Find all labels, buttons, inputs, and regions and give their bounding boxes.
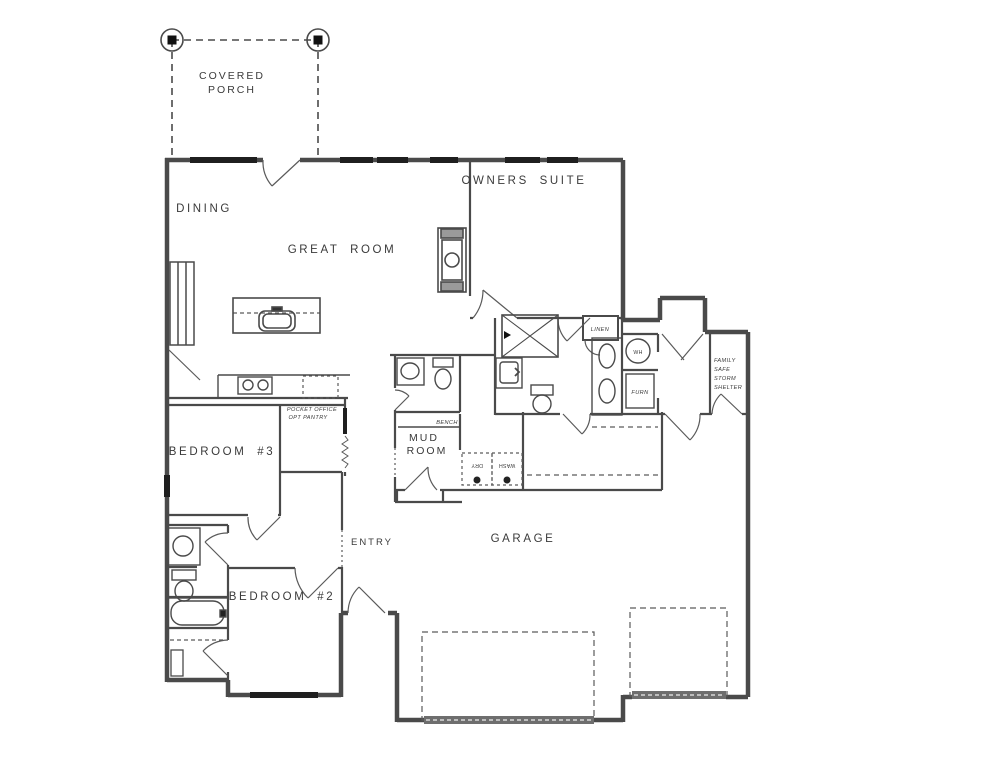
sink-icon: [599, 344, 615, 368]
pocket-door-cavity: [342, 436, 348, 468]
bench-label: BENCH: [436, 420, 458, 426]
storm-shelter-label: STORM: [714, 376, 736, 382]
door-swing-icon: [712, 394, 742, 414]
entry-label: ENTRY: [351, 537, 393, 548]
door-swing-icon: [203, 640, 228, 676]
window-icon: [430, 157, 458, 163]
washer-hookup-icon: [504, 477, 511, 484]
powder-bath-fixtures: [397, 358, 453, 389]
dining-label: DINING: [176, 203, 232, 215]
showerhead-icon: [504, 331, 511, 339]
hall-bath-fixtures: [167, 528, 228, 628]
double-vanity-icon: [592, 338, 622, 415]
door-swing-icon: [205, 533, 228, 565]
porch-outline: [172, 40, 318, 158]
tub-drain-icon: [220, 610, 226, 617]
door-swing-icon: [563, 414, 590, 434]
floor-plan-drawing: COVERED PORCH DINING GREAT ROOM OWNERS S…: [0, 0, 1002, 768]
furnace-label: FURN: [631, 390, 649, 396]
great-room-label: GREAT ROOM: [288, 244, 397, 256]
toilet-icon: [172, 570, 196, 580]
door-swing-icon: [348, 587, 385, 613]
pocket-office-label: OPT PANTRY: [288, 415, 328, 421]
door-swing-icon: [665, 414, 700, 440]
window-icon: [377, 157, 408, 163]
door-swing-icon: [248, 517, 280, 540]
pocket-office-label: POCKET OFFICE: [287, 407, 337, 413]
closet-rod-icon: [527, 427, 658, 475]
covered-porch-label: PORCH: [208, 84, 256, 96]
window-icon: [190, 157, 257, 163]
refrigerator-icon: [303, 376, 338, 398]
toilet-icon: [433, 358, 453, 367]
linen-label: LINEN: [591, 327, 610, 333]
window-icon: [164, 475, 170, 497]
door-swing-icon: [558, 318, 590, 341]
vanity-sink-icon: [496, 358, 522, 388]
washer-label: WASH: [499, 462, 516, 468]
storm-shelter-label: SHELTER: [714, 385, 742, 391]
sink-icon: [173, 536, 193, 556]
garage-door-track-icon: [630, 608, 727, 696]
mud-room-label: ROOM: [407, 445, 448, 457]
kitchen-counter: [218, 375, 350, 398]
door-swing-icon: [473, 290, 517, 318]
storm-shelter-label: SAFE: [714, 367, 730, 373]
window-icon: [250, 692, 318, 698]
corner-pantry-door: [169, 350, 200, 380]
toilet-icon: [531, 385, 553, 413]
dryer-hookup-icon: [474, 477, 481, 484]
fireplace-icon: [438, 228, 466, 292]
door-swing-icon: [405, 467, 437, 490]
pocket-door-panel-icon: [343, 408, 347, 434]
storm-shelter-label: FAMILY: [714, 358, 737, 364]
door-swing-icon: [662, 334, 703, 360]
sink-icon: [599, 379, 615, 403]
floor-plan: COVERED PORCH DINING GREAT ROOM OWNERS S…: [0, 0, 1002, 768]
faucet-icon: [272, 307, 282, 311]
room-labels: COVERED PORCH DINING GREAT ROOM OWNERS S…: [169, 70, 742, 603]
door-swing-icon: [395, 390, 409, 410]
shower-icon: [502, 315, 558, 357]
builtin-cabinet-icon: [170, 262, 194, 345]
window-icon: [547, 157, 578, 163]
dryer-label: DRY: [471, 462, 483, 468]
exterior-walls: [165, 158, 748, 722]
owners-suite-label: OWNERS SUITE: [461, 175, 586, 187]
porch-column-icon: [161, 29, 183, 51]
closet-shelf-icon: [171, 650, 183, 676]
window-icon: [505, 157, 540, 163]
bedroom-3-label: BEDROOM #3: [169, 446, 275, 458]
bedroom-2-label: BEDROOM #2: [229, 591, 335, 603]
kitchen-island: [233, 298, 320, 333]
garage-label: GARAGE: [491, 533, 556, 545]
door-swing-icon: [263, 160, 300, 186]
mud-room-label: MUD: [409, 432, 439, 444]
garage-doors: [424, 691, 726, 724]
garage-door-track-icon: [422, 632, 594, 720]
covered-porch-label: COVERED: [199, 70, 265, 82]
water-heater-label: WH: [633, 350, 642, 356]
window-icon: [340, 157, 373, 163]
vanity-icon: [167, 528, 200, 565]
